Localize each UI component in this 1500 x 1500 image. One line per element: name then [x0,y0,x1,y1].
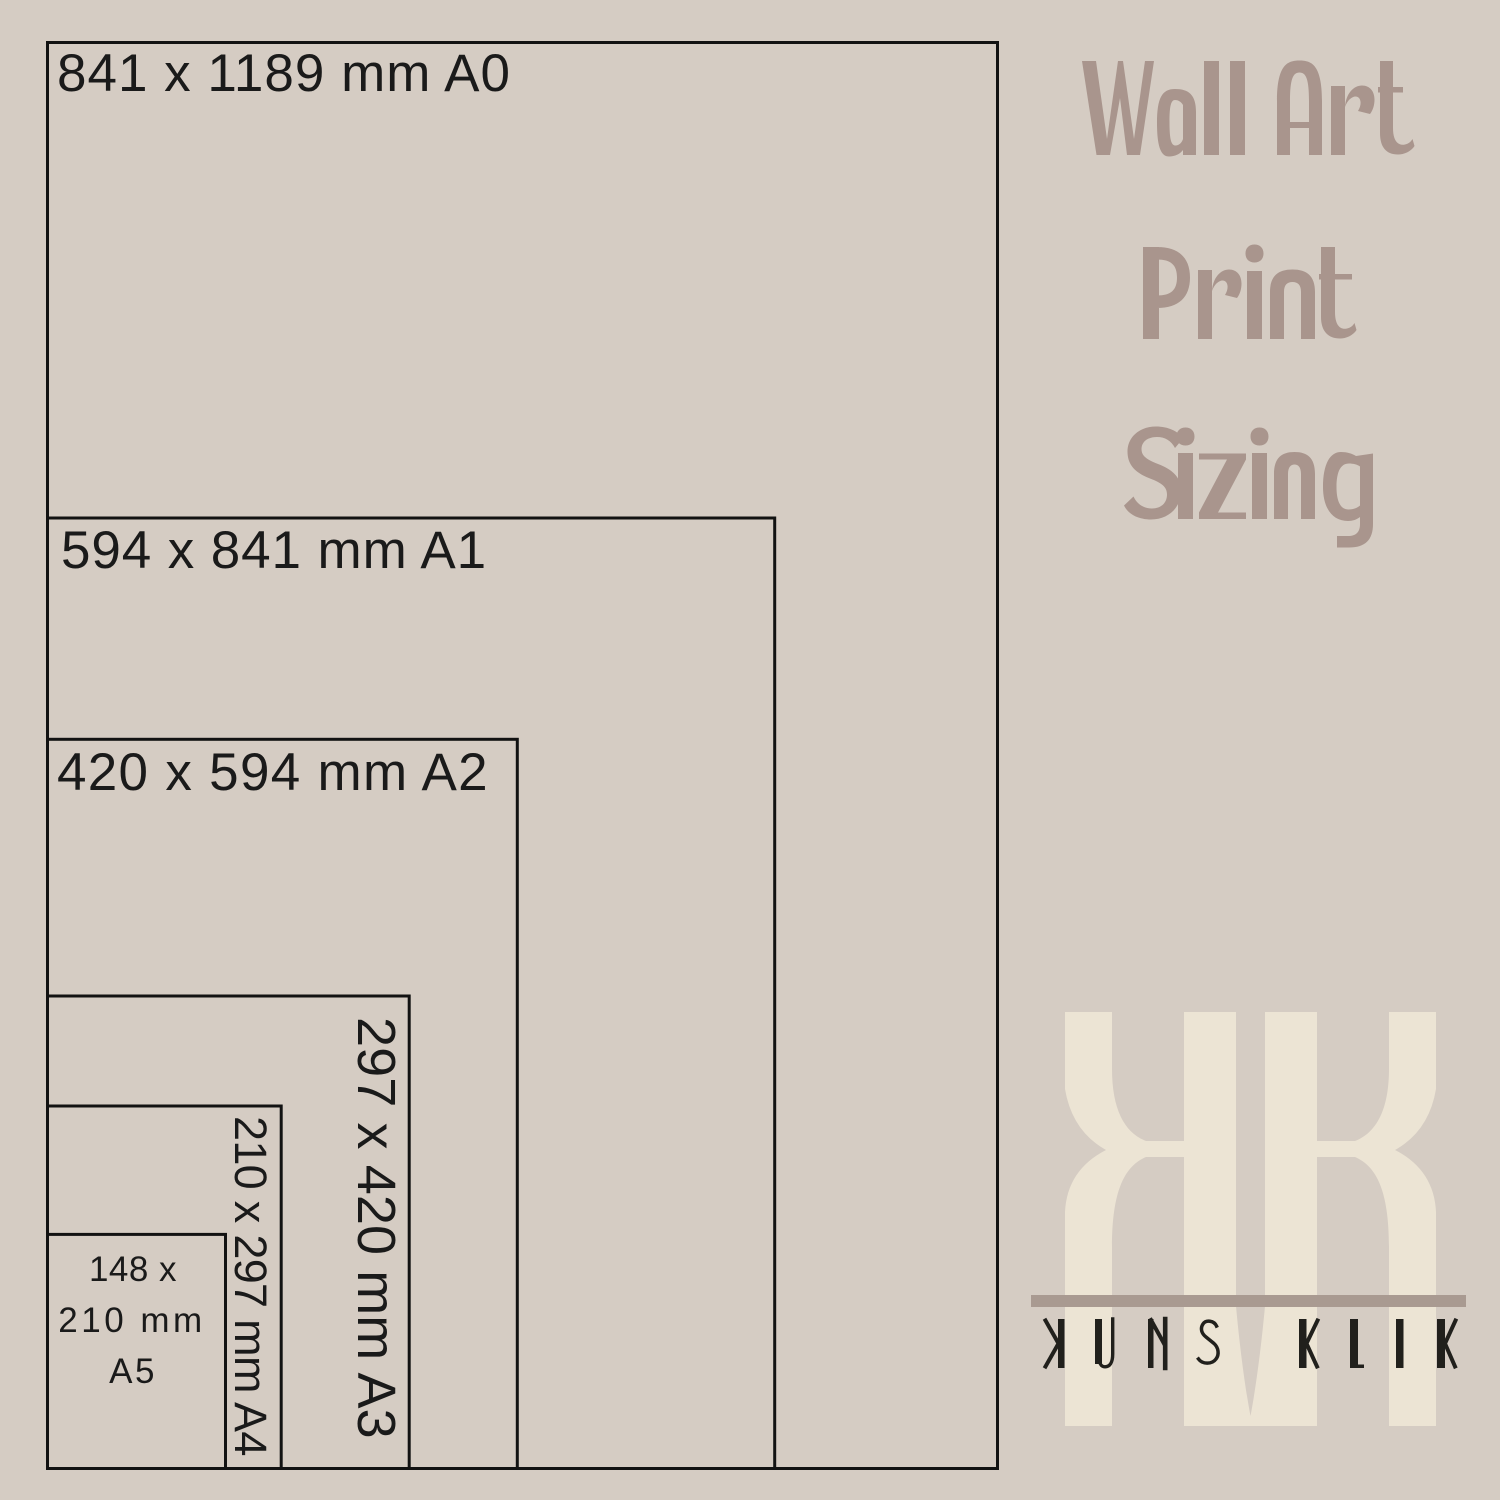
svg-text:841 x 1189 mm A0: 841 x 1189 mm A0 [57,44,511,103]
svg-text:A5: A5 [109,1352,157,1391]
svg-text:148 x: 148 x [89,1250,177,1289]
svg-text:210 x 297 mm A4: 210 x 297 mm A4 [225,1116,276,1456]
svg-text:594 x 841 mm A1: 594 x 841 mm A1 [61,521,487,580]
svg-text:420 x 594 mm A2: 420 x 594 mm A2 [57,743,489,802]
svg-text:210 mm: 210 mm [58,1301,205,1340]
svg-text:297 x 420 mm A3: 297 x 420 mm A3 [346,1017,406,1439]
